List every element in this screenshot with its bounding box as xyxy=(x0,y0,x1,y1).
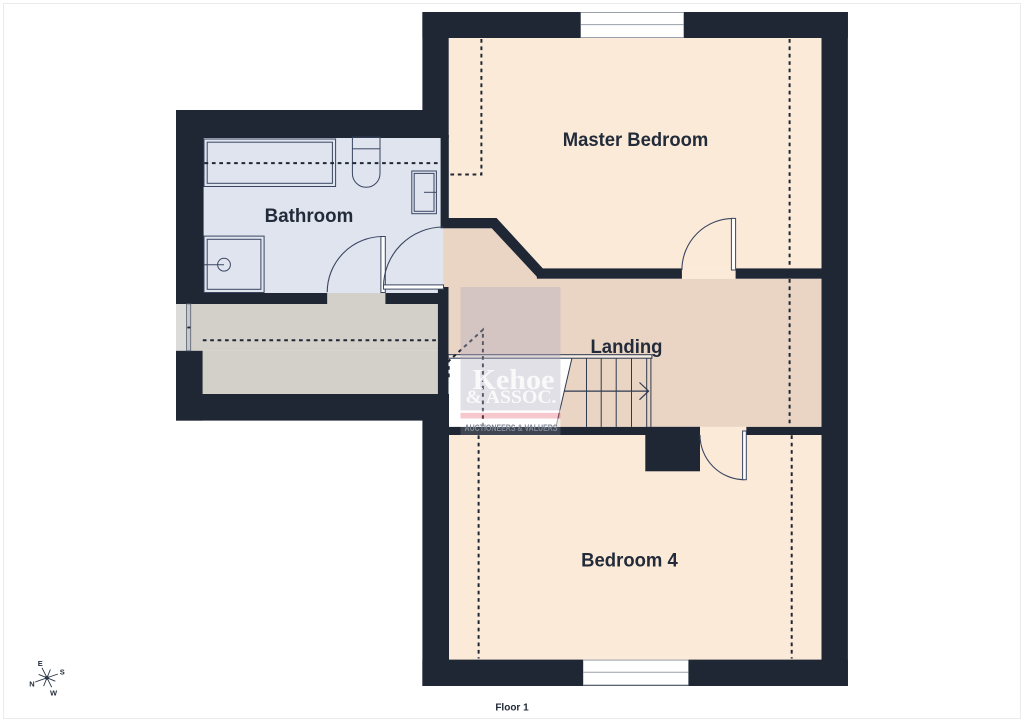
svg-text:Bathroom: Bathroom xyxy=(265,205,354,227)
svg-text:Master Bedroom: Master Bedroom xyxy=(563,129,709,151)
svg-text:S: S xyxy=(60,668,65,677)
svg-text:Landing: Landing xyxy=(591,336,663,358)
svg-text:W: W xyxy=(50,688,58,697)
svg-text:AUCTIONEERS & VALUERS: AUCTIONEERS & VALUERS xyxy=(465,423,558,433)
svg-text:& ASSOC.: & ASSOC. xyxy=(466,387,557,408)
svg-text:Bedroom 4: Bedroom 4 xyxy=(581,549,678,571)
svg-text:E: E xyxy=(38,659,43,668)
svg-text:N: N xyxy=(29,680,34,689)
svg-text:Floor 1: Floor 1 xyxy=(495,703,529,714)
